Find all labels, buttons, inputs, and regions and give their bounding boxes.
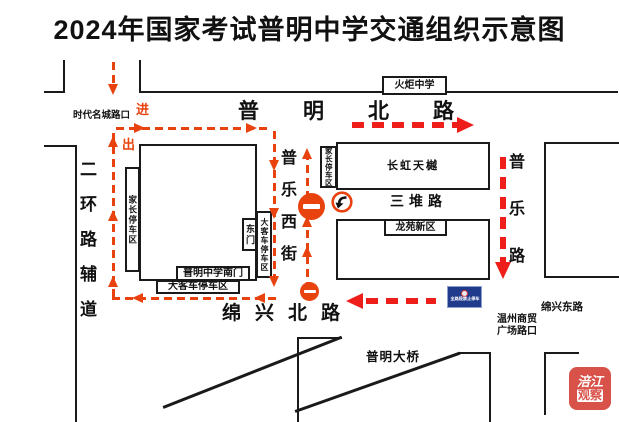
right-block: [544, 142, 619, 278]
east-gate-label: 东门: [245, 224, 254, 246]
bridge-block-top-line: [458, 352, 491, 354]
school-campus-block: [139, 144, 257, 281]
bridge-diagonal-1: [163, 336, 343, 409]
bus-parking-east-label: 大客车停车区: [260, 218, 268, 272]
route-arrow-up-4: [302, 148, 312, 159]
label-shidai-intersection: 时代名城路口: [73, 111, 130, 121]
watermark-line1: 涪江: [577, 375, 603, 388]
longyuan-label-box: 龙苑新区: [384, 219, 447, 236]
bottomright-block-side-line: [544, 352, 546, 415]
longyuan-label: 龙苑新区: [396, 223, 436, 233]
parent-parking-west-box: 家长停车区: [125, 167, 140, 272]
east-gate-box: 东门: [242, 218, 257, 251]
arrow-pule-down-head: [495, 262, 511, 279]
route-arrow-down-1: [269, 160, 279, 171]
block-corner-topleft-h: [44, 91, 65, 93]
parent-parking-east-box: 家长停车区: [320, 146, 337, 188]
route-arrow-up-2: [108, 210, 118, 221]
road-label-puming-bridge: 普明大桥: [366, 351, 420, 364]
no-entry-bar: [303, 204, 320, 209]
no-entry-small-bar: [304, 290, 316, 294]
arrow-mianxing-west-dash: [366, 298, 436, 304]
no-parking-sign-text: 全路段禁止停车: [450, 297, 479, 301]
route-arrow-right-2: [246, 123, 257, 133]
no-entry-sign-small-icon: [300, 282, 319, 301]
label-wenzhou-plaza-line2: 广场路口: [497, 326, 537, 338]
route-entry-north-dash: [112, 62, 115, 86]
road-label-sandui: 三堆路: [390, 194, 447, 208]
arrow-puming-east-dash: [352, 122, 458, 128]
changhong-tianyue-label: 长虹天樾: [387, 161, 439, 172]
no-parking-roundel-icon: [461, 290, 468, 297]
flow-enter-label: 进: [136, 103, 149, 116]
road-label-erhuan-fudao: 二环路辅道: [78, 160, 95, 335]
bottomright-block-top-line: [544, 352, 579, 354]
bus-parking-east-box: 大客车停车区: [256, 211, 272, 278]
arrow-mianxing-west-head: [346, 293, 363, 309]
bus-parking-south-label: 大客车停车区: [168, 282, 228, 292]
route-arrow-left-2: [254, 293, 265, 303]
huoju-school-label: 火炬中学: [395, 81, 435, 91]
watermark-seal: 涪江 观察: [569, 367, 611, 410]
route-arrow-left-1: [132, 293, 143, 303]
bus-parking-south-box: 大客车停车区: [156, 280, 240, 294]
route-arrow-up-6: [302, 246, 312, 257]
changhong-tianyue-block: 长虹天樾: [336, 142, 490, 190]
parent-parking-east-label: 家长停车区: [325, 147, 333, 187]
school-south-gate-label: 普明中学南门: [183, 269, 243, 279]
puming-north-road-line: [139, 91, 618, 93]
route-arrow-down-entry: [108, 84, 118, 95]
watermark-line2: 观察: [577, 389, 603, 402]
block-corner-topmid-v: [139, 60, 141, 93]
road-label-mianxing-east: 绵兴东路: [541, 302, 583, 313]
page-title: 2024年国家考试普明中学交通组织示意图: [0, 8, 619, 47]
route-arrow-down-2: [269, 208, 279, 219]
route-arrow-right-1: [134, 123, 145, 133]
no-parking-sign: 全路段禁止停车: [447, 286, 482, 308]
left-turn-sign-icon: [331, 191, 353, 213]
road-label-pule-west-street: 普乐西街: [278, 149, 294, 277]
arrow-pule-down-dash: [500, 157, 506, 262]
no-entry-sign-icon: [298, 193, 325, 220]
road-label-mianxing-north: 绵兴北路: [222, 304, 354, 323]
block-corner-topleft-v: [63, 60, 65, 93]
school-south-gate-box: 普明中学南门: [176, 266, 250, 281]
route-pulewest-down-dash: [273, 131, 276, 277]
huoju-school-box: 火炬中学: [382, 76, 447, 95]
parent-parking-west-label: 家长停车区: [128, 195, 137, 245]
traffic-diagram: 2024年国家考试普明中学交通组织示意图 家长停车区 东门 大客车停车区 普明中…: [0, 0, 619, 422]
arrow-puming-east-head: [457, 117, 474, 133]
label-wenzhou-plaza: 温州商贸 广场路口: [497, 314, 537, 337]
left-block-top-line: [44, 145, 77, 147]
label-wenzhou-plaza-line1: 温州商贸: [497, 314, 537, 326]
route-arrow-down-3: [269, 276, 279, 287]
route-arrow-up-1: [108, 136, 118, 147]
flow-exit-label: 出: [122, 138, 135, 151]
route-arrow-up-3: [108, 276, 118, 287]
bridge-block-side-line: [489, 352, 491, 422]
